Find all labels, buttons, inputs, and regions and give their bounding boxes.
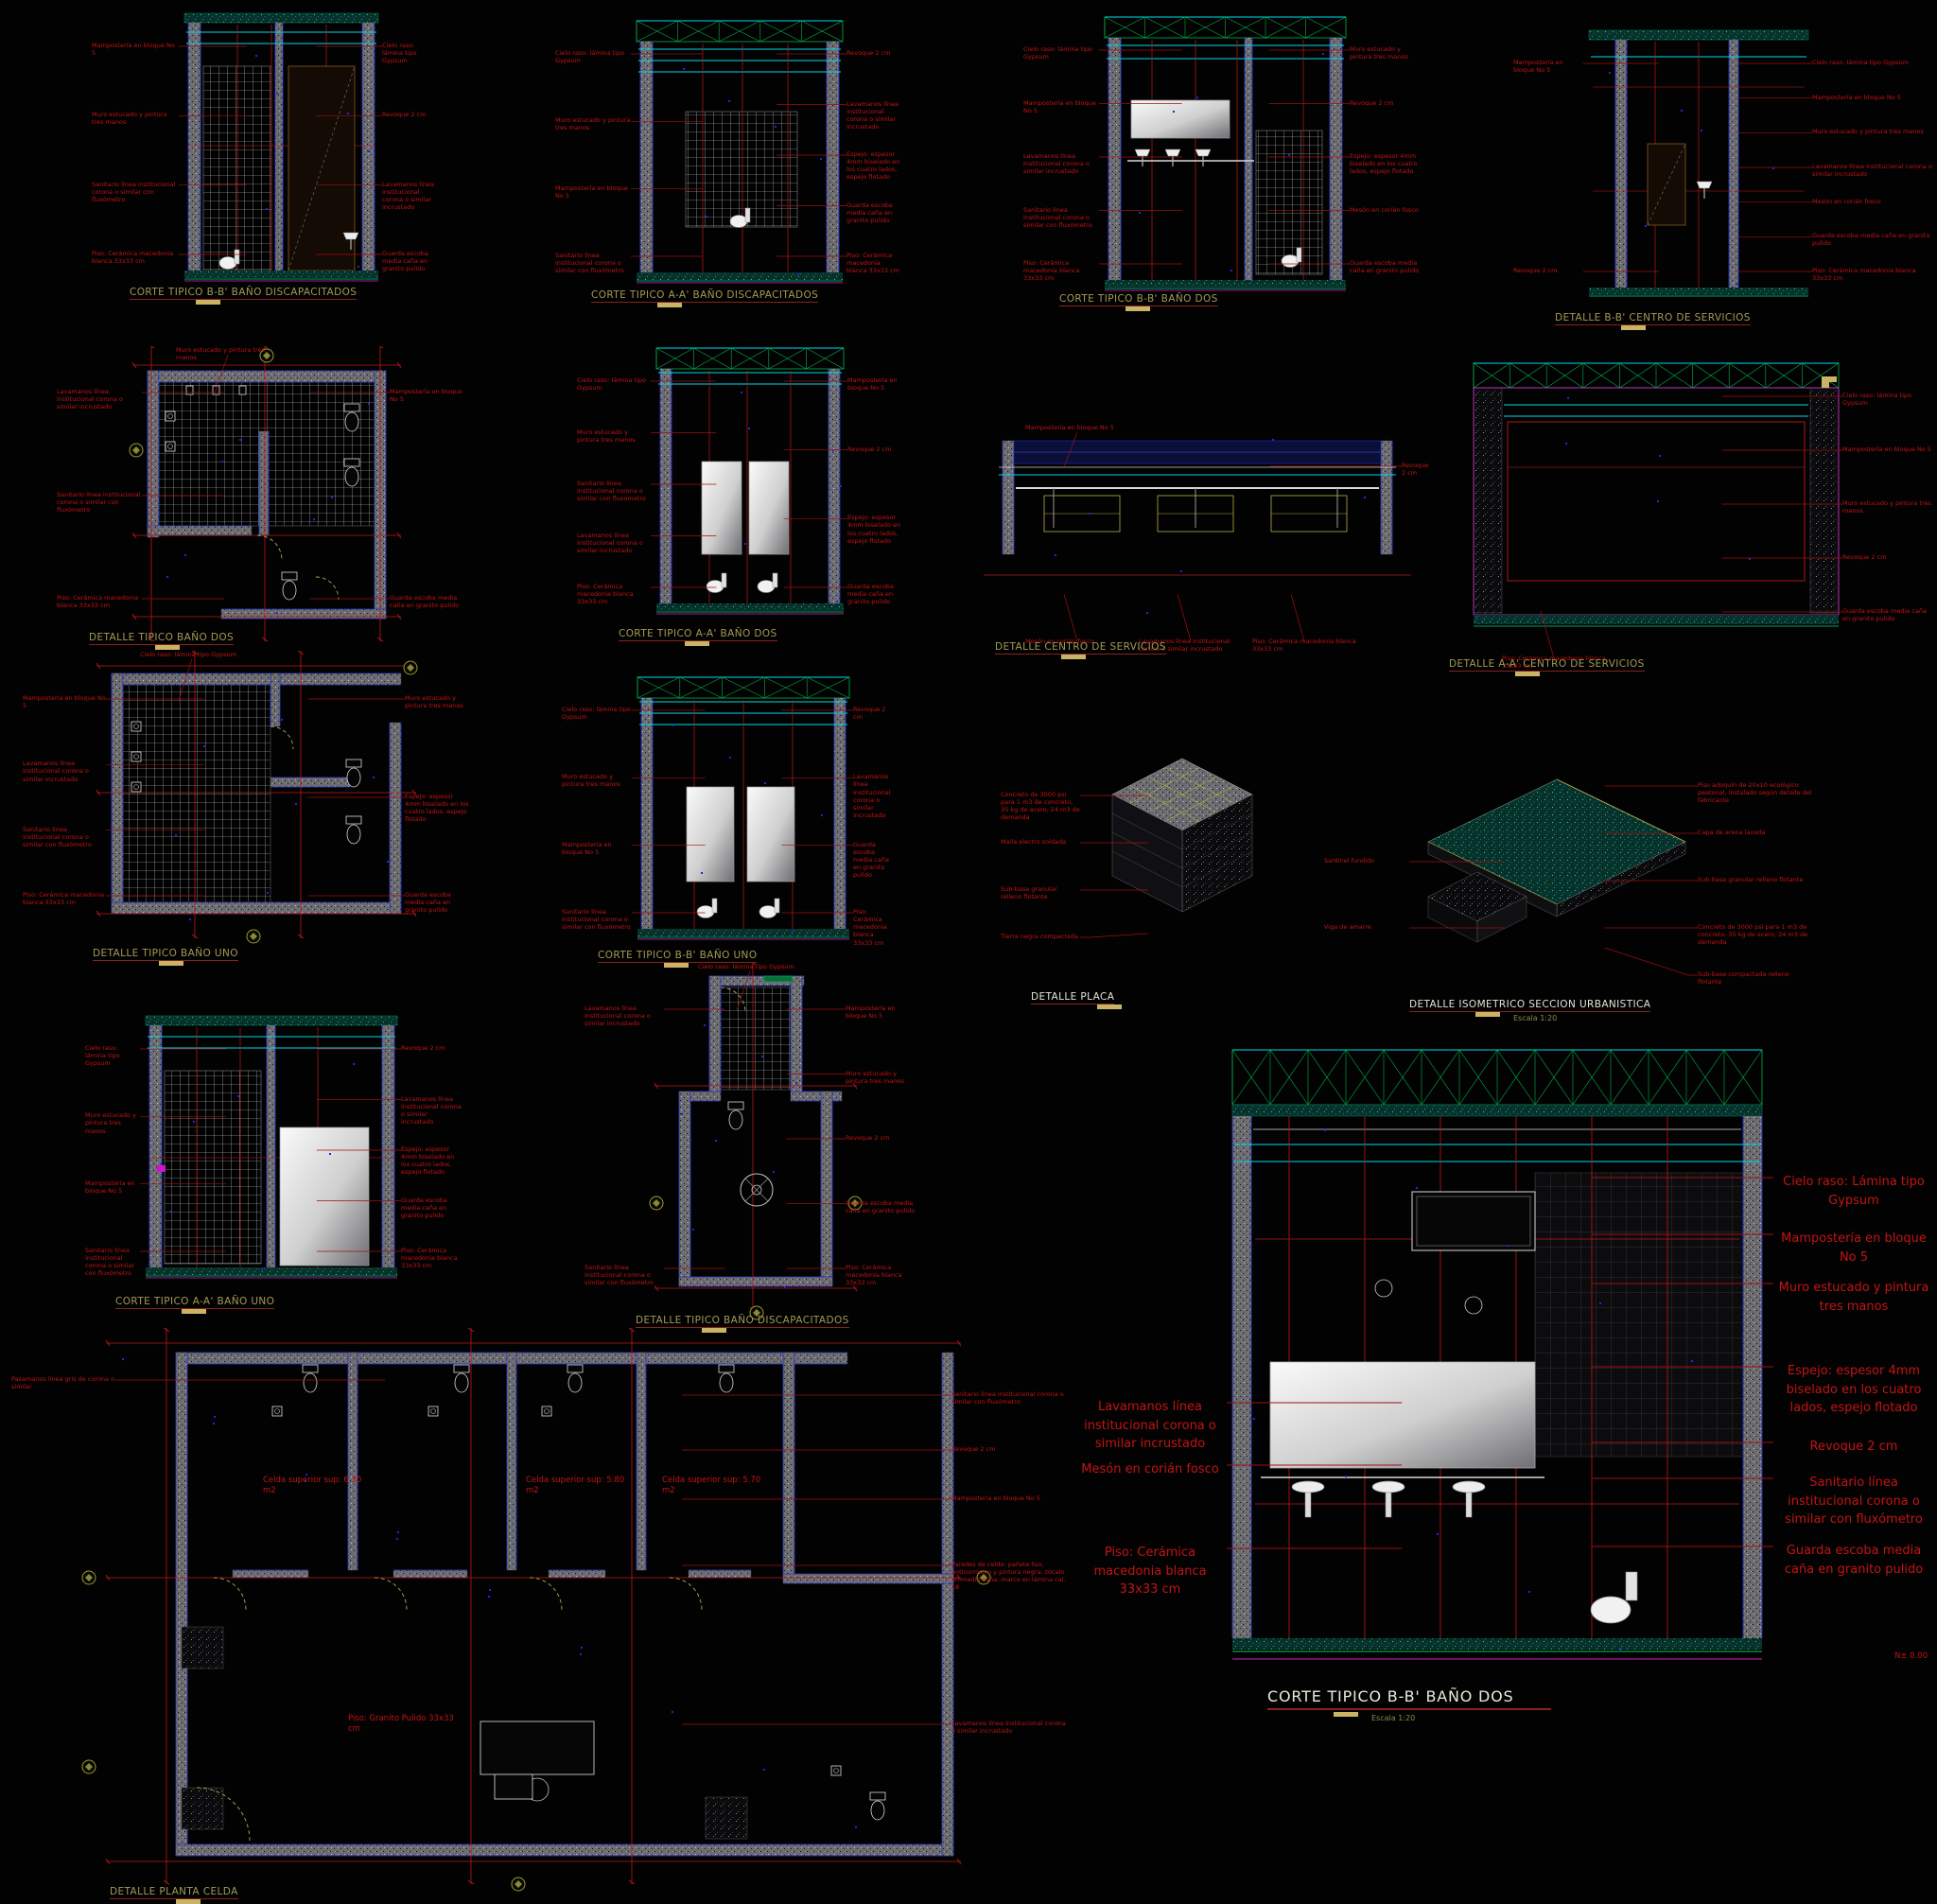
scale-bar bbox=[196, 300, 220, 305]
annotation-label: Sanitario línea institucional corona o s… bbox=[23, 826, 106, 848]
drawing-corte-bb-bano-dos-grande[interactable]: Lavamanos línea institucional corona o s… bbox=[1073, 1033, 1937, 1723]
annotation-label: Muro estucado y pintura tres manos bbox=[1350, 45, 1424, 61]
annotation-label: Piso: Cerámica macedonia blanca 33x33 cm bbox=[1073, 1544, 1227, 1599]
annotation-label: Mesón en corián fosco bbox=[1812, 198, 1933, 205]
annotation-label: Revoque 2 cm bbox=[853, 706, 893, 721]
annotation-label: Sanitario línea institucional corona o s… bbox=[585, 1264, 664, 1286]
annotation-label: Mampostería en bloque No 5 bbox=[1773, 1230, 1934, 1266]
annotation-label: Mampostería en bloque No 5 bbox=[85, 1179, 140, 1195]
annotation-label: Lavamanos línea institucional corona o s… bbox=[401, 1095, 462, 1127]
drawing-title: DETALLE TIPICO BAÑO UNO bbox=[93, 948, 238, 961]
annotation-label: Sub-base compactada relleno flotante bbox=[1698, 970, 1814, 986]
scale-bar bbox=[664, 963, 689, 968]
drawing-corte-bb-bano-dos[interactable]: Cielo raso: lámina tipo GypsumMamposterí… bbox=[1021, 9, 1428, 308]
annotation-label: Sanitario línea institucional corona o s… bbox=[85, 1247, 140, 1278]
annotation-label: Muro estucado y pintura tres manos bbox=[1812, 128, 1933, 135]
annotation-label: Mesón en corián fosco bbox=[1073, 1460, 1227, 1479]
annotation-label: Piso: Cerámica macedonia blanca 33x33 cm bbox=[92, 250, 179, 265]
title-underline bbox=[1267, 1708, 1551, 1710]
annotation-label: Mampostería en bloque No 5 bbox=[1812, 94, 1933, 101]
annotation-label: Muro estucado y pintura tres manos bbox=[85, 1111, 140, 1134]
drawing-title: CORTE TIPICO A-A' BAÑO DISCAPACITADOS bbox=[591, 289, 818, 303]
scale-label: Escala 1:20 bbox=[1371, 1714, 1415, 1722]
drawing-title: DETALLE A-A' CENTRO DE SERVICIOS bbox=[1449, 658, 1645, 672]
annotation-label: Lavamanos línea institucional corona o s… bbox=[1023, 152, 1099, 175]
annotation-label: Revoque 2 cm bbox=[1350, 99, 1424, 107]
annotation-label: Mampostería en bloque No 5 bbox=[1842, 445, 1933, 453]
drawing-corte-aa-bano-dos[interactable]: Cielo raso: lámina tipo GypsumMuro estuc… bbox=[575, 339, 910, 647]
annotation-label: Guarda escoba media caña en granito puli… bbox=[1773, 1542, 1934, 1579]
annotation-label: Piso: Cerámica macedonia blanca 33x33 cm bbox=[401, 1247, 462, 1269]
annotation-label: Guarda escoba media caña en granito puli… bbox=[390, 594, 463, 609]
annotation-label: Mampostería en bloque No 5 bbox=[951, 1494, 1069, 1502]
annotation-label: N± 0.00 bbox=[1894, 1651, 1937, 1662]
scale-label: Escala 1:20 bbox=[1513, 1014, 1557, 1022]
annotation-label: Paredes de celda: pañete liso, anticorro… bbox=[951, 1561, 1069, 1592]
annotation-label: Lavamanos línea institucional corona o s… bbox=[853, 773, 893, 819]
annotation-label: Piso: Cerámica macedonia blanca 33x33 cm bbox=[1252, 638, 1356, 653]
annotation-label: Mesón en corián fosco bbox=[1350, 206, 1424, 214]
annotation-label: Lavamanos línea institucional corona o s… bbox=[23, 760, 106, 782]
annotation-label: Lavamanos línea institucional corona o s… bbox=[846, 100, 901, 131]
drawing-detalle-centro-servicios[interactable]: Revoque 2 cmMampostería en bloque No 5Me… bbox=[957, 424, 1436, 662]
annotation-label: Guarda escoba media caña en granito puli… bbox=[1350, 259, 1424, 274]
annotation-label: Mampostería en bloque No 5 bbox=[555, 184, 631, 200]
annotation-label: Capa de arena lavada bbox=[1698, 829, 1814, 836]
annotation-label: Concreto de 3000 psi para 1 m3 de concre… bbox=[1001, 791, 1080, 822]
annotation-label: Mampostería en bloque No 5 bbox=[1023, 99, 1099, 114]
annotation-label: Mampostería en bloque No 5 bbox=[92, 42, 179, 57]
annotation-label: Sanitario línea institucional corona o s… bbox=[1023, 206, 1099, 229]
drawing-title: DETALLE B-B' CENTRO DE SERVICIOS bbox=[1555, 312, 1751, 325]
annotation-label: Muro estucado y pintura tres manos bbox=[405, 694, 469, 709]
annotation-label: Cielo raso: lámina tipo Gypsum bbox=[1812, 59, 1933, 66]
drawing-linework bbox=[999, 707, 1317, 1025]
annotation-label: Guarda escoba media caña en granito puli… bbox=[405, 891, 469, 914]
annotation-label: Guarda escoba media caña en granito puli… bbox=[846, 201, 901, 224]
annotation-label: Mampostería en bloque No 5 bbox=[846, 1004, 916, 1020]
annotation-label: Muro estucado y pintura tres manos bbox=[555, 116, 631, 131]
annotation-label: Guarda escoba media caña en granito puli… bbox=[847, 583, 906, 605]
annotation-label: Piso: Cerámica macedonia blanca 33x33 cm bbox=[1023, 259, 1099, 282]
annotation-label: Piso: Cerámica macedonia blanca 33x33 cm bbox=[23, 891, 106, 906]
annotation-label: Guarda escoba media caña en granito puli… bbox=[853, 841, 893, 880]
annotation-label: Espejo: espesor 4mm biselado en los cuat… bbox=[1350, 152, 1424, 175]
annotation-label: Lavamanos línea institucional corona o s… bbox=[951, 1720, 1069, 1735]
annotation-label: Sub-base granular relleno flotante bbox=[1001, 885, 1080, 900]
annotation-label: Piso: Cerámica macedonia blanca 33x33 cm bbox=[57, 594, 142, 609]
annotation-label: Sanitario línea institucional corona o s… bbox=[577, 480, 651, 502]
annotation-label: Mampostería en bloque No 5 bbox=[23, 694, 106, 709]
annotation-label: Mampostería en bloque No 5 bbox=[1513, 59, 1583, 74]
annotation-label: Muro estucado y pintura tres manos bbox=[1842, 499, 1933, 515]
annotation-label: Mampostería en bloque No 5 bbox=[390, 388, 463, 403]
annotation-label: Piso: Cerámica macedonia blanca 33x33 cm bbox=[846, 252, 901, 274]
annotation-label: Guarda escoba media caña en granito puli… bbox=[1812, 232, 1933, 247]
drawing-title: DETALLE TIPICO BAÑO DISCAPACITADOS bbox=[636, 1315, 849, 1328]
annotation-label: Sardinel fundido bbox=[1324, 857, 1409, 865]
annotation-label: Revoque 2 cm bbox=[846, 1134, 916, 1142]
scale-bar bbox=[159, 961, 183, 966]
annotation-label: Cielo raso: lámina tipo Gypsum bbox=[1842, 392, 1933, 407]
drawing-title: CORTE TIPICO B-B' BAÑO DOS bbox=[1059, 293, 1218, 306]
scale-bar bbox=[1061, 655, 1086, 659]
scale-bar bbox=[1097, 1004, 1122, 1009]
annotation-label: Sanitario línea institucional corona o s… bbox=[1773, 1474, 1934, 1529]
annotation-label: Lavamanos línea institucional corona o s… bbox=[577, 532, 651, 554]
annotation-label: Sub-base granular relleno flotante bbox=[1698, 876, 1814, 883]
annotation-label: Revoque 2 cm bbox=[1773, 1438, 1934, 1457]
drawing-detalle-bb-centro-servicios[interactable]: Mampostería en bloque No 5Revoque 2 cmCi… bbox=[1511, 21, 1937, 325]
annotation-label: Cielo raso: lámina tipo Gypsum bbox=[1023, 45, 1099, 61]
drawing-title: DETALLE TIPICO BAÑO DOS bbox=[89, 632, 234, 645]
drawing-title: CORTE TIPICO B-B' BAÑO UNO bbox=[598, 950, 757, 963]
annotation-label: Mampostería en bloque No 5 bbox=[847, 376, 906, 392]
annotation-label: Revoque 2 cm bbox=[1513, 267, 1583, 274]
drawing-linework bbox=[9, 1322, 1074, 1904]
scale-bar bbox=[1475, 1012, 1500, 1017]
annotation-label: Sanitario línea institucional corona o s… bbox=[562, 908, 632, 931]
annotation-label: Sanitario línea institucional corona o s… bbox=[57, 491, 142, 514]
annotation-label: Muro estucado y pintura tres manos bbox=[846, 1070, 916, 1085]
annotation-label: Cielo raso: lámina tipo Gypsum bbox=[85, 1044, 140, 1067]
annotation-label: Sanitario línea institucional corona o s… bbox=[92, 181, 179, 203]
annotation-label: Pasamanos línea gris de corona o similar bbox=[11, 1375, 115, 1390]
annotation-label: Cielo raso: lámina tipo Gypsum bbox=[577, 376, 651, 392]
drawing-detalle-aa-centro-servicios[interactable]: Cielo raso: lámina tipo GypsumMamposterí… bbox=[1392, 350, 1937, 677]
annotation-label: Lavamanos línea institucional corona o s… bbox=[585, 1004, 664, 1027]
drawing-detalle-tipico-bano-uno[interactable]: Mampostería en bloque No 5Lavamanos líne… bbox=[21, 651, 473, 970]
drawing-title: DETALLE PLANTA CELDA bbox=[110, 1886, 238, 1899]
annotation-label: Revoque 2 cm bbox=[1402, 462, 1432, 477]
annotation-label: Mampostería en bloque No 5 bbox=[562, 841, 632, 856]
annotation-label: Revoque 2 cm bbox=[401, 1044, 462, 1052]
annotation-label: Cielo raso: lámina tipo Gypsum bbox=[698, 963, 802, 970]
annotation-label: Revoque 2 cm bbox=[951, 1445, 1069, 1453]
annotation-label: Cielo raso: lámina tipo Gypsum bbox=[382, 42, 434, 64]
annotation-label: Piso adoquín de 20x10 ecológico peatonal… bbox=[1698, 781, 1814, 804]
annotation-label: Muro estucado y pintura tres manos bbox=[1773, 1279, 1934, 1316]
scale-bar bbox=[1126, 306, 1150, 311]
annotation-label: Espejo: espesor 4mm biselado en los cuat… bbox=[846, 150, 901, 182]
annotation-label: Guarda escoba media caña en granito puli… bbox=[1842, 607, 1933, 622]
annotation-label: Tierra negra compactada bbox=[1001, 933, 1080, 940]
drawing-title: CORTE TIPICO A-A' BAÑO DOS bbox=[619, 628, 777, 641]
annotation-label: Espejo: espesor 4mm biselado en los cuat… bbox=[847, 514, 906, 545]
annotation-label: Espejo: espesor 4mm biselado en los cuat… bbox=[405, 793, 469, 824]
drawing-title: DETALLE PLACA bbox=[1031, 991, 1114, 1004]
scale-bar bbox=[1334, 1712, 1358, 1717]
annotation-label: Celda superior sup: 5.70 m2 bbox=[662, 1476, 776, 1496]
drawing-corte-aa-bano-uno[interactable]: Cielo raso: lámina tipo GypsumMuro estuc… bbox=[83, 1006, 465, 1322]
annotation-label: Piso: Cerámica macedonia blanca 33x33 cm bbox=[1812, 267, 1933, 282]
annotation-label: Celda superior sup: 5.80 m2 bbox=[526, 1476, 639, 1496]
annotation-label: Revoque 2 cm bbox=[846, 49, 901, 57]
annotation-label: Muro estucado y pintura tres manos bbox=[176, 346, 280, 361]
scale-bar bbox=[155, 645, 180, 650]
drawing-corte-bb-bano-uno[interactable]: Cielo raso: lámina tipo GypsumMuro estuc… bbox=[560, 666, 897, 970]
drawing-detalle-placa[interactable]: Concreto de 3000 psi para 1 m3 de concre… bbox=[999, 707, 1317, 1025]
annotation-label: Malla electro soldada bbox=[1001, 838, 1080, 846]
annotation-label: Muro estucado y pintura tres manos bbox=[577, 428, 651, 444]
annotation-label: Viga de amarre bbox=[1324, 923, 1409, 931]
annotation-label: Celda superior sup: 6.30 m2 bbox=[263, 1476, 376, 1496]
scale-bar bbox=[1621, 325, 1646, 330]
annotation-label: Cielo raso: Lámina tipo Gypsum bbox=[1773, 1173, 1934, 1210]
scale-bar bbox=[685, 641, 709, 646]
annotation-label: Muro estucado y pintura tres manos bbox=[562, 773, 632, 788]
drawing-corte-bb-bano-discapacitados[interactable]: Mampostería en bloque No 5Muro estucado … bbox=[90, 8, 438, 308]
annotation-label: Lavamanos línea institucional corona o s… bbox=[1812, 163, 1933, 178]
drawing-detalle-tipico-bano-discapacitados[interactable]: Lavamanos línea institucional corona o s… bbox=[583, 963, 919, 1339]
drawing-title: DETALLE CENTRO DE SERVICIOS bbox=[995, 641, 1166, 655]
annotation-label: Piso: Cerámica macedonia blanca 33x33 cm bbox=[577, 583, 651, 605]
scale-bar bbox=[702, 1328, 726, 1333]
annotation-label: Revoque 2 cm bbox=[382, 111, 434, 118]
drawing-detalle-planta-celda[interactable]: Pasamanos línea gris de corona o similar… bbox=[9, 1322, 1074, 1904]
drawing-title: CORTE TIPICO B-B' BAÑO DOS bbox=[1267, 1687, 1513, 1706]
annotation-label: Guarda escoba media caña en granito puli… bbox=[846, 1199, 916, 1214]
annotation-label: Guarda escoba media caña en granito puli… bbox=[382, 250, 434, 272]
annotation-label: Cielo raso: lámina tipo Gypsum bbox=[562, 706, 632, 721]
scale-bar bbox=[176, 1899, 201, 1904]
annotation-label: Espejo: espesor 4mm biselado en los cuat… bbox=[1773, 1362, 1934, 1418]
annotation-label: Revoque 2 cm bbox=[847, 445, 906, 453]
scale-bar bbox=[182, 1309, 206, 1314]
drawing-corte-aa-bano-discapacitados[interactable]: Cielo raso: lámina tipo GypsumMuro estuc… bbox=[553, 13, 905, 303]
drawing-linework bbox=[957, 424, 1436, 662]
drawing-detalle-tipico-bano-dos[interactable]: Lavamanos línea institucional corona o s… bbox=[55, 346, 467, 655]
annotation-label: Sanitario línea institucional corona o s… bbox=[951, 1390, 1069, 1406]
drawing-title: DETALLE ISOMETRICO SECCION URBANISTICA bbox=[1409, 999, 1650, 1012]
annotation-label: Revoque 2 cm bbox=[1842, 553, 1933, 561]
annotation-label: Piso: Granito Pulido 33x33 cm bbox=[348, 1714, 462, 1735]
scale-bar bbox=[657, 303, 682, 307]
drawing-title: CORTE TIPICO A-A' BAÑO UNO bbox=[115, 1296, 274, 1309]
scale-bar bbox=[1515, 672, 1540, 676]
annotation-label: Piso: Cerámica macedonia blanca 33x33 cm bbox=[853, 908, 893, 947]
annotation-label: Piso: Cerámica macedonia blanca 33x33 cm bbox=[846, 1264, 916, 1286]
annotation-label: Lavamanos línea institucional corona o s… bbox=[1073, 1398, 1227, 1454]
annotation-label: Cielo raso: lámina tipo Gypsum bbox=[140, 651, 244, 658]
annotation-label: Espejo: espesor 4mm biselado en los cuat… bbox=[401, 1145, 462, 1177]
annotation-label: Mampostería en bloque No 5 bbox=[1025, 424, 1129, 431]
annotation-label: Cielo raso: lámina tipo Gypsum bbox=[555, 49, 631, 64]
annotation-label: Lavamanos línea institucional corona o s… bbox=[57, 388, 142, 410]
annotation-label: Concreto de 3000 psi para 1 m3 de concre… bbox=[1698, 923, 1814, 946]
annotation-label: Guarda escoba media caña en granito puli… bbox=[401, 1197, 462, 1219]
model-space-canvas[interactable]: Mampostería en bloque No 5Muro estucado … bbox=[0, 0, 1937, 1904]
annotation-label: Sanitario línea institucional corona o s… bbox=[555, 252, 631, 274]
annotation-label: Muro estucado y pintura tres manos bbox=[92, 111, 179, 126]
annotation-label: Lavamanos línea institucional corona o s… bbox=[382, 181, 434, 212]
drawing-detalle-isometrico-seccion-urbanistica[interactable]: Sardinel fundidoViga de amarrePiso adoqu… bbox=[1322, 726, 1818, 1035]
drawing-title: CORTE TIPICO B-B' BAÑO DISCAPACITADOS bbox=[130, 287, 357, 300]
